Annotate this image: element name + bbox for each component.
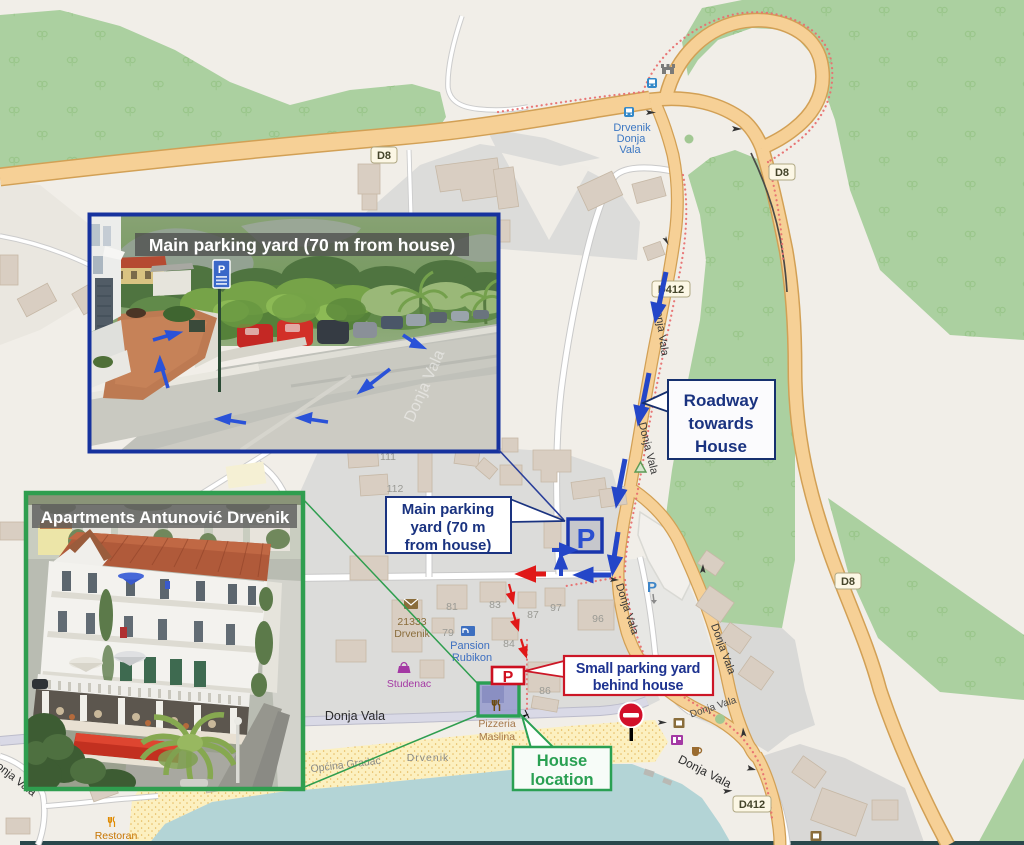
svg-text:Main parking yard (70 m from h: Main parking yard (70 m from house) (149, 235, 455, 255)
svg-text:Studenac: Studenac (387, 678, 431, 690)
svg-text:P: P (218, 264, 225, 276)
svg-text:Drvenik: Drvenik (407, 752, 450, 764)
svg-text:87: 87 (527, 609, 539, 621)
svg-text:D8: D8 (377, 150, 391, 162)
svg-text:Drvenik: Drvenik (394, 628, 430, 640)
svg-text:Vala: Vala (619, 144, 641, 156)
svg-text:79: 79 (442, 627, 454, 639)
svg-text:P: P (647, 579, 657, 596)
svg-text:Maslina: Maslina (479, 731, 515, 743)
svg-text:House: House (537, 752, 587, 770)
svg-text:yard (70 m: yard (70 m (410, 519, 485, 536)
svg-text:from house): from house) (405, 537, 492, 554)
svg-text:Roadway: Roadway (684, 391, 759, 410)
svg-text:96: 96 (592, 613, 604, 625)
svg-text:towards: towards (688, 414, 753, 433)
svg-text:House: House (695, 437, 747, 456)
svg-text:83: 83 (489, 599, 501, 611)
svg-text:P: P (577, 523, 596, 554)
svg-text:D412: D412 (739, 799, 765, 811)
svg-text:behind house: behind house (593, 678, 684, 694)
svg-text:P: P (503, 669, 514, 686)
svg-text:Main parking: Main parking (402, 501, 495, 518)
svg-text:81: 81 (446, 601, 458, 613)
svg-text:Restoran: Restoran (95, 830, 138, 842)
svg-text:D8: D8 (775, 167, 789, 179)
svg-text:Small parking yard: Small parking yard (576, 661, 700, 677)
svg-text:97: 97 (550, 602, 562, 614)
svg-text:location: location (530, 771, 593, 789)
svg-text:84: 84 (503, 638, 515, 650)
svg-text:Apartments Antunović Drvenik: Apartments Antunović Drvenik (41, 508, 290, 527)
svg-text:Pansion: Pansion (450, 640, 490, 652)
svg-text:Donja Vala: Donja Vala (325, 709, 385, 723)
svg-text:D8: D8 (841, 576, 855, 588)
svg-text:112: 112 (387, 483, 404, 495)
svg-text:86: 86 (539, 685, 551, 697)
svg-text:Pizzeria: Pizzeria (478, 718, 516, 730)
